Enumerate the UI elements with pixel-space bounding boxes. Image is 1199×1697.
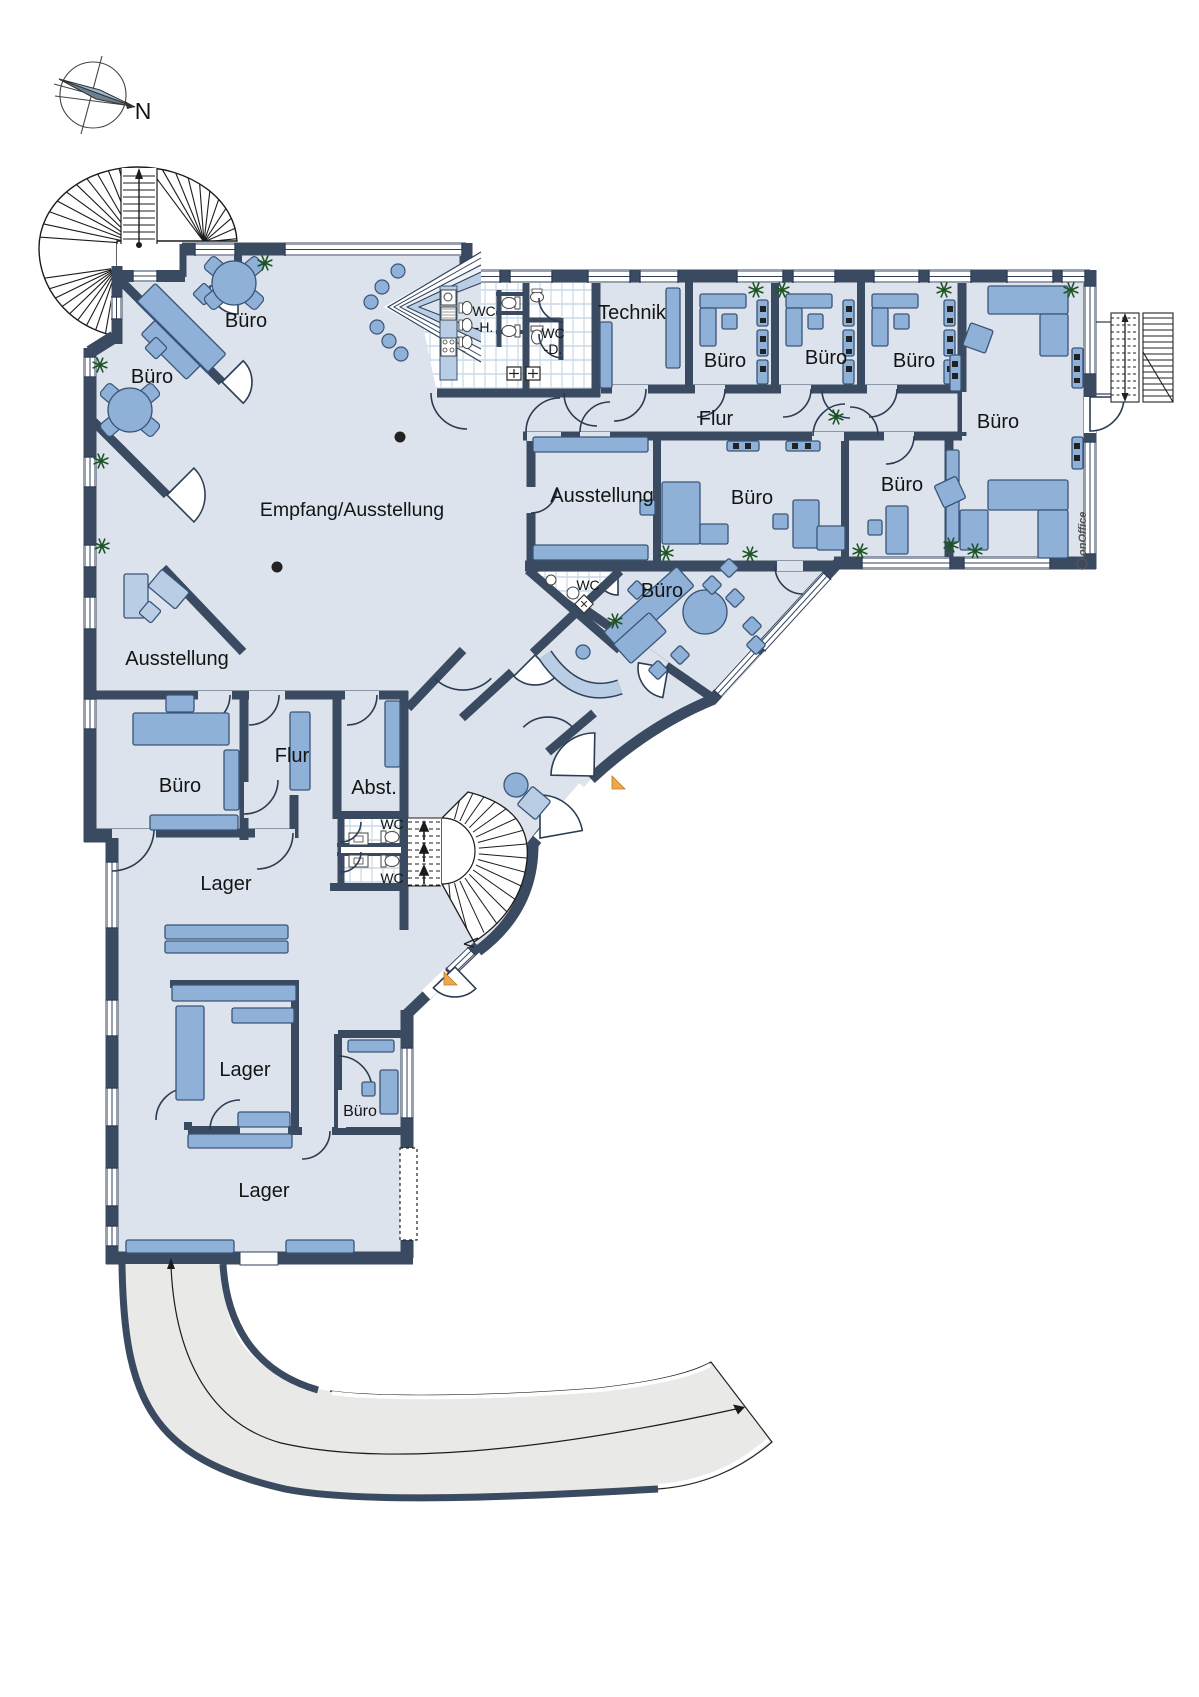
svg-text:Lager: Lager	[238, 1180, 289, 1202]
svg-text:Flur: Flur	[275, 745, 310, 767]
svg-text:Lager: Lager	[200, 873, 251, 895]
svg-text:Flur: Flur	[699, 408, 734, 430]
svg-text:Ausstellung: Ausstellung	[550, 485, 653, 507]
svg-text:Büro: Büro	[131, 366, 173, 388]
svg-text:Büro: Büro	[704, 350, 746, 372]
svg-text:Ausstellung: Ausstellung	[125, 648, 228, 670]
svg-text:N: N	[135, 98, 152, 124]
svg-text:WC: WC	[576, 577, 599, 593]
svg-text:Abst.: Abst.	[351, 777, 397, 799]
svg-text:Büro: Büro	[641, 580, 683, 602]
svg-text:Empfang/Ausstellung: Empfang/Ausstellung	[260, 499, 444, 521]
svg-text:WC: WC	[472, 303, 495, 319]
svg-text:WC: WC	[541, 325, 564, 341]
svg-text:-H.: -H.	[475, 319, 494, 335]
svg-text:onOffice: onOffice	[1077, 512, 1089, 556]
svg-text:-D.: -D.	[544, 341, 563, 357]
svg-text:Lager: Lager	[219, 1059, 270, 1081]
svg-text:Büro: Büro	[343, 1103, 377, 1120]
svg-text:Büro: Büro	[159, 775, 201, 797]
svg-text:Büro: Büro	[225, 310, 267, 332]
svg-text:Büro: Büro	[881, 474, 923, 496]
svg-text:Büro: Büro	[893, 350, 935, 372]
svg-text:Büro: Büro	[731, 487, 773, 509]
svg-text:Büro: Büro	[977, 411, 1019, 433]
svg-text:WC: WC	[380, 870, 403, 886]
svg-text:WC: WC	[380, 816, 403, 832]
svg-text:Büro: Büro	[805, 347, 847, 369]
svg-text:Technik: Technik	[598, 302, 667, 324]
